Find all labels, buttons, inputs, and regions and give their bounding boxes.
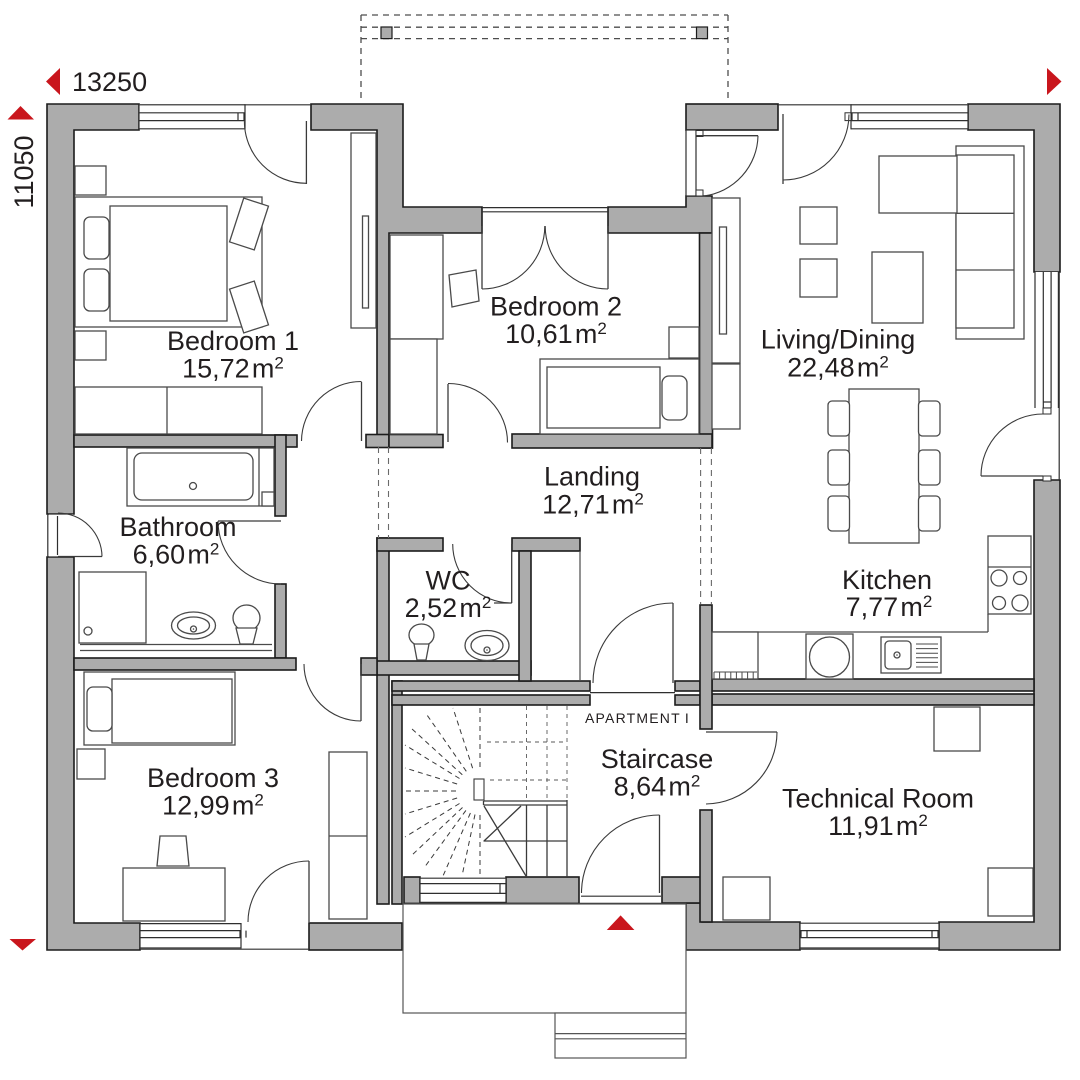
svg-text:Bedroom 1: Bedroom 1 xyxy=(167,326,299,356)
svg-text:22,48 m2: 22,48 m2 xyxy=(787,353,889,383)
svg-text:Landing: Landing xyxy=(544,462,640,492)
svg-text:8,64 m2: 8,64 m2 xyxy=(614,772,701,802)
svg-text:12,71 m2: 12,71 m2 xyxy=(542,490,644,520)
svg-text:10,61 m2: 10,61 m2 xyxy=(505,319,607,349)
svg-text:APARTMENT I: APARTMENT I xyxy=(585,710,690,726)
svg-text:11050: 11050 xyxy=(9,135,39,208)
svg-text:Living/Dining: Living/Dining xyxy=(761,325,916,355)
svg-text:2,52 m2: 2,52 m2 xyxy=(405,593,492,623)
svg-text:15,72 m2: 15,72 m2 xyxy=(182,354,284,384)
svg-text:WC: WC xyxy=(426,566,471,596)
svg-text:Bedroom 3: Bedroom 3 xyxy=(147,763,279,793)
svg-text:13250: 13250 xyxy=(72,67,147,97)
svg-text:11,91 m2: 11,91 m2 xyxy=(828,811,928,841)
svg-text:Technical Room: Technical Room xyxy=(782,784,974,814)
svg-text:6,60 m2: 6,60 m2 xyxy=(133,540,220,570)
svg-text:12,99 m2: 12,99 m2 xyxy=(162,791,264,821)
svg-text:Kitchen: Kitchen xyxy=(842,565,932,595)
svg-text:7,77 m2: 7,77 m2 xyxy=(846,592,933,622)
svg-text:Bathroom: Bathroom xyxy=(119,512,236,542)
svg-text:Bedroom 2: Bedroom 2 xyxy=(490,292,622,322)
svg-text:Staircase: Staircase xyxy=(601,744,714,774)
